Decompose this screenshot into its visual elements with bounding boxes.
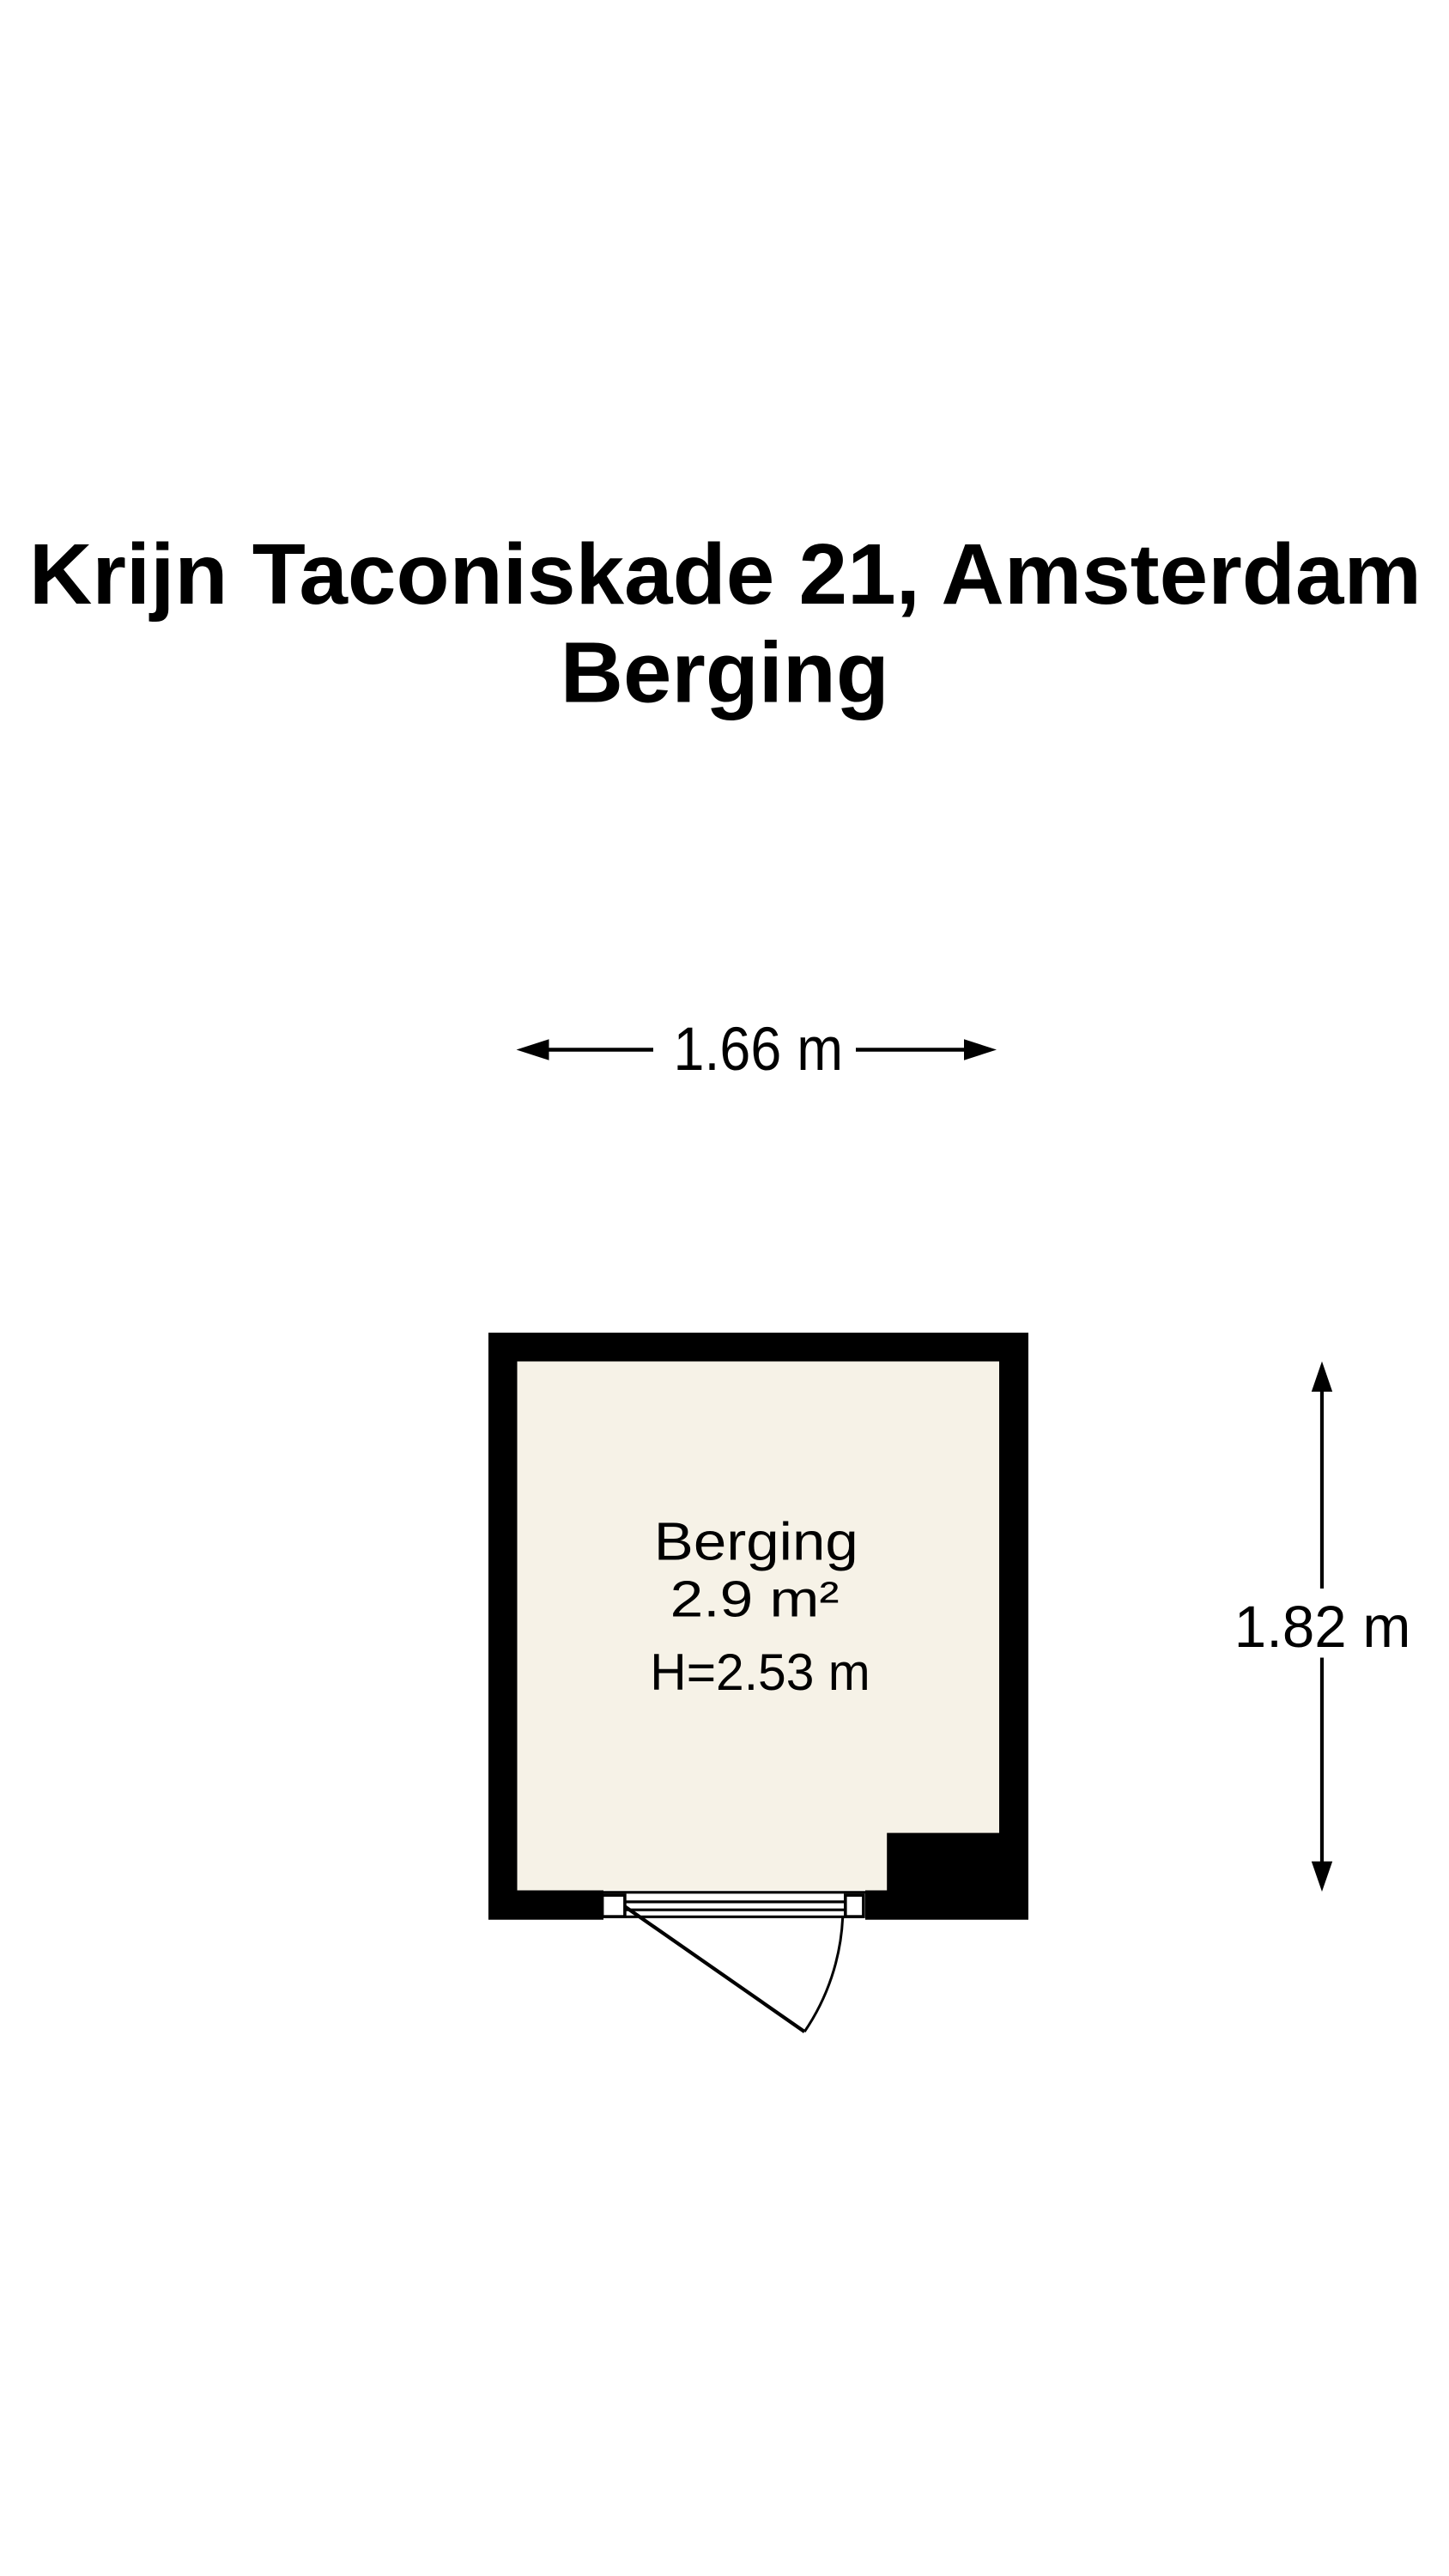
svg-text:1.66 m: 1.66 m <box>674 1016 844 1084</box>
svg-text:2.9 m²: 2.9 m² <box>670 1571 840 1628</box>
svg-text:Krijn Taconiskade 21, Amsterda: Krijn Taconiskade 21, Amsterdam <box>29 526 1422 623</box>
svg-text:1.82 m: 1.82 m <box>1234 1594 1411 1660</box>
svg-text:Berging: Berging <box>561 624 889 720</box>
svg-text:H=2.53 m: H=2.53 m <box>650 1643 870 1701</box>
svg-text:Berging: Berging <box>654 1513 858 1572</box>
